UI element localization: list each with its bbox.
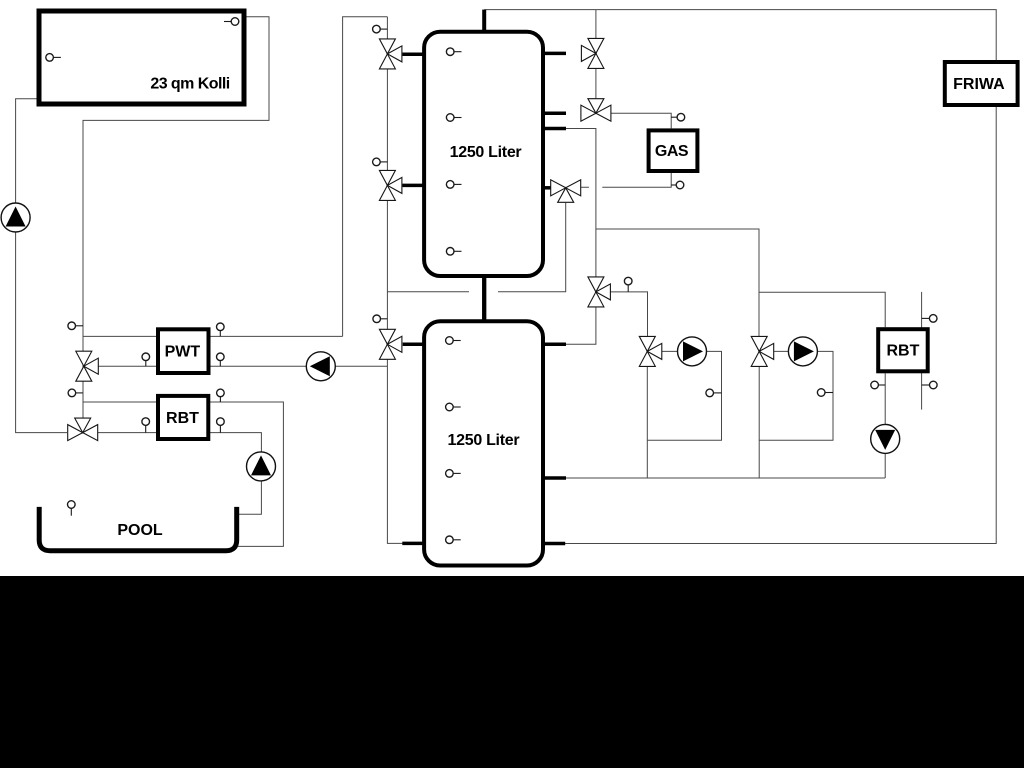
svg-text:POOL: POOL [117, 522, 163, 539]
svg-text:1250 Liter: 1250 Liter [450, 144, 522, 161]
svg-text:PWT: PWT [165, 344, 201, 361]
svg-text:RBT: RBT [166, 410, 199, 427]
svg-text:GAS: GAS [655, 143, 689, 160]
svg-text:1250 Liter: 1250 Liter [448, 432, 520, 449]
svg-text:RBT: RBT [886, 343, 919, 360]
svg-text:FRIWA: FRIWA [953, 76, 1005, 93]
svg-text:23 qm Kolli: 23 qm Kolli [150, 76, 229, 93]
